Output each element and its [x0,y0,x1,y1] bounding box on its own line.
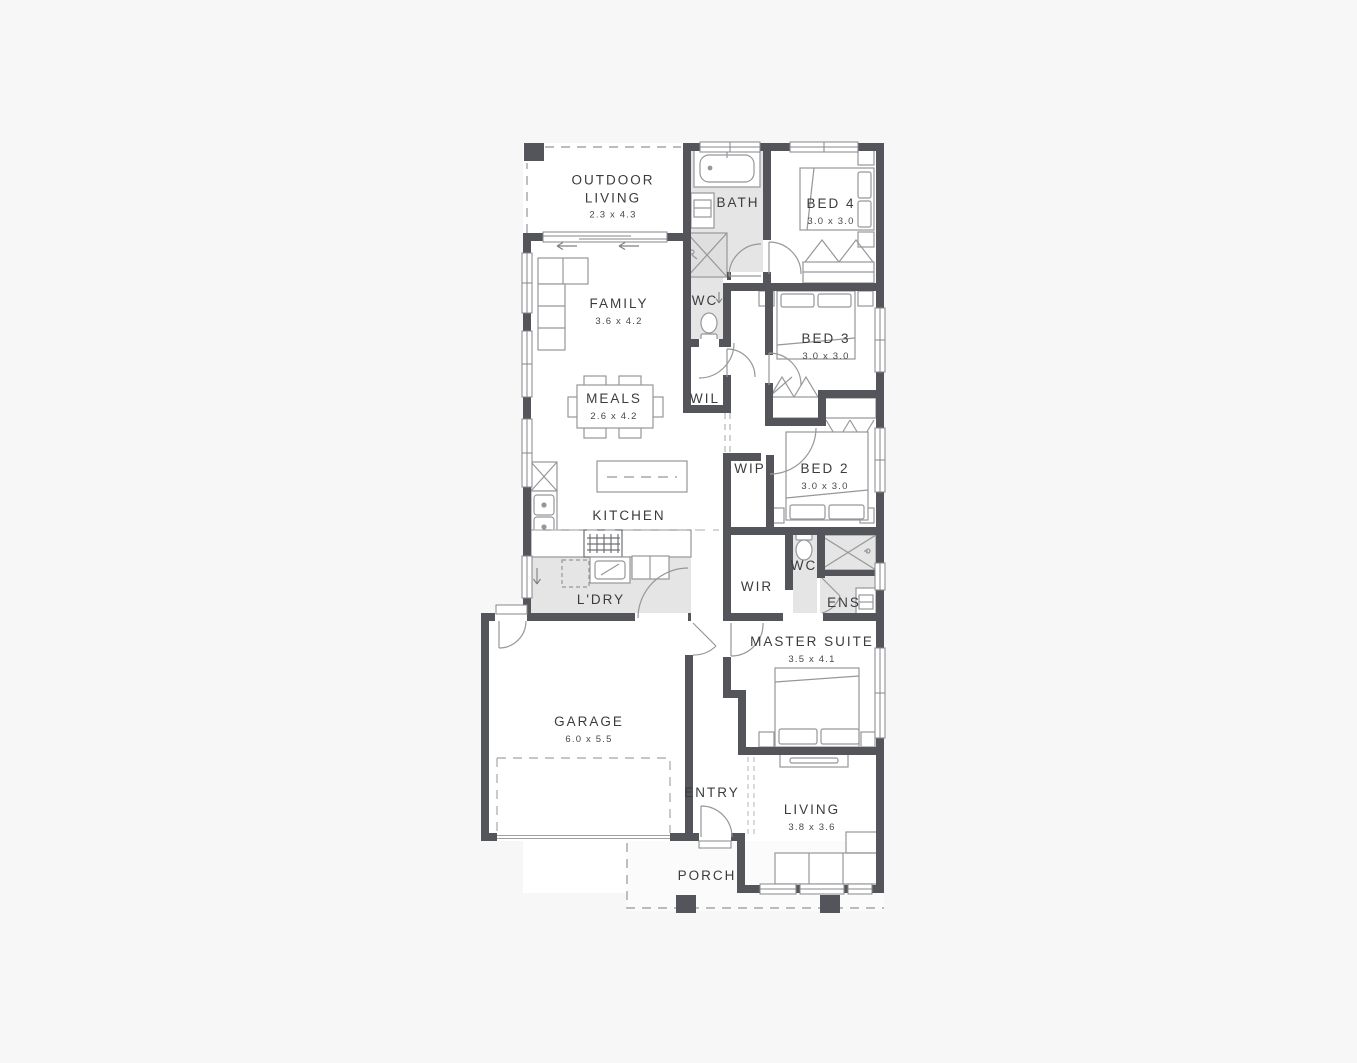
window [522,253,532,313]
window [522,419,532,487]
sliding-door [543,232,667,242]
fridge-space [531,462,557,491]
window [875,563,885,590]
cooktop [584,530,622,557]
garage-panel-door [497,833,670,841]
tv-unit [780,754,848,767]
laundry-trough [590,557,630,583]
window [790,142,858,152]
toilet [796,532,812,560]
floor-plan-svg [0,0,1357,1063]
window [760,884,796,894]
window [875,308,885,372]
toilet [701,313,717,343]
post [820,895,840,913]
floorplan-canvas: OUTDOOR LIVING 2.3 x 4.3 BATH BED 4 3.0 … [0,0,1357,1063]
window [522,331,532,397]
post [524,143,544,161]
post [676,895,696,913]
window [875,648,885,738]
ensuite-vanity [856,588,876,617]
window [800,884,844,894]
bath-vanity [691,193,714,228]
window [875,428,885,492]
island-bench [597,461,687,492]
laundry-cupboard [632,556,669,579]
window [522,556,532,598]
window [700,142,760,152]
bed [759,668,875,747]
window [848,884,872,894]
bathtub [694,150,760,187]
